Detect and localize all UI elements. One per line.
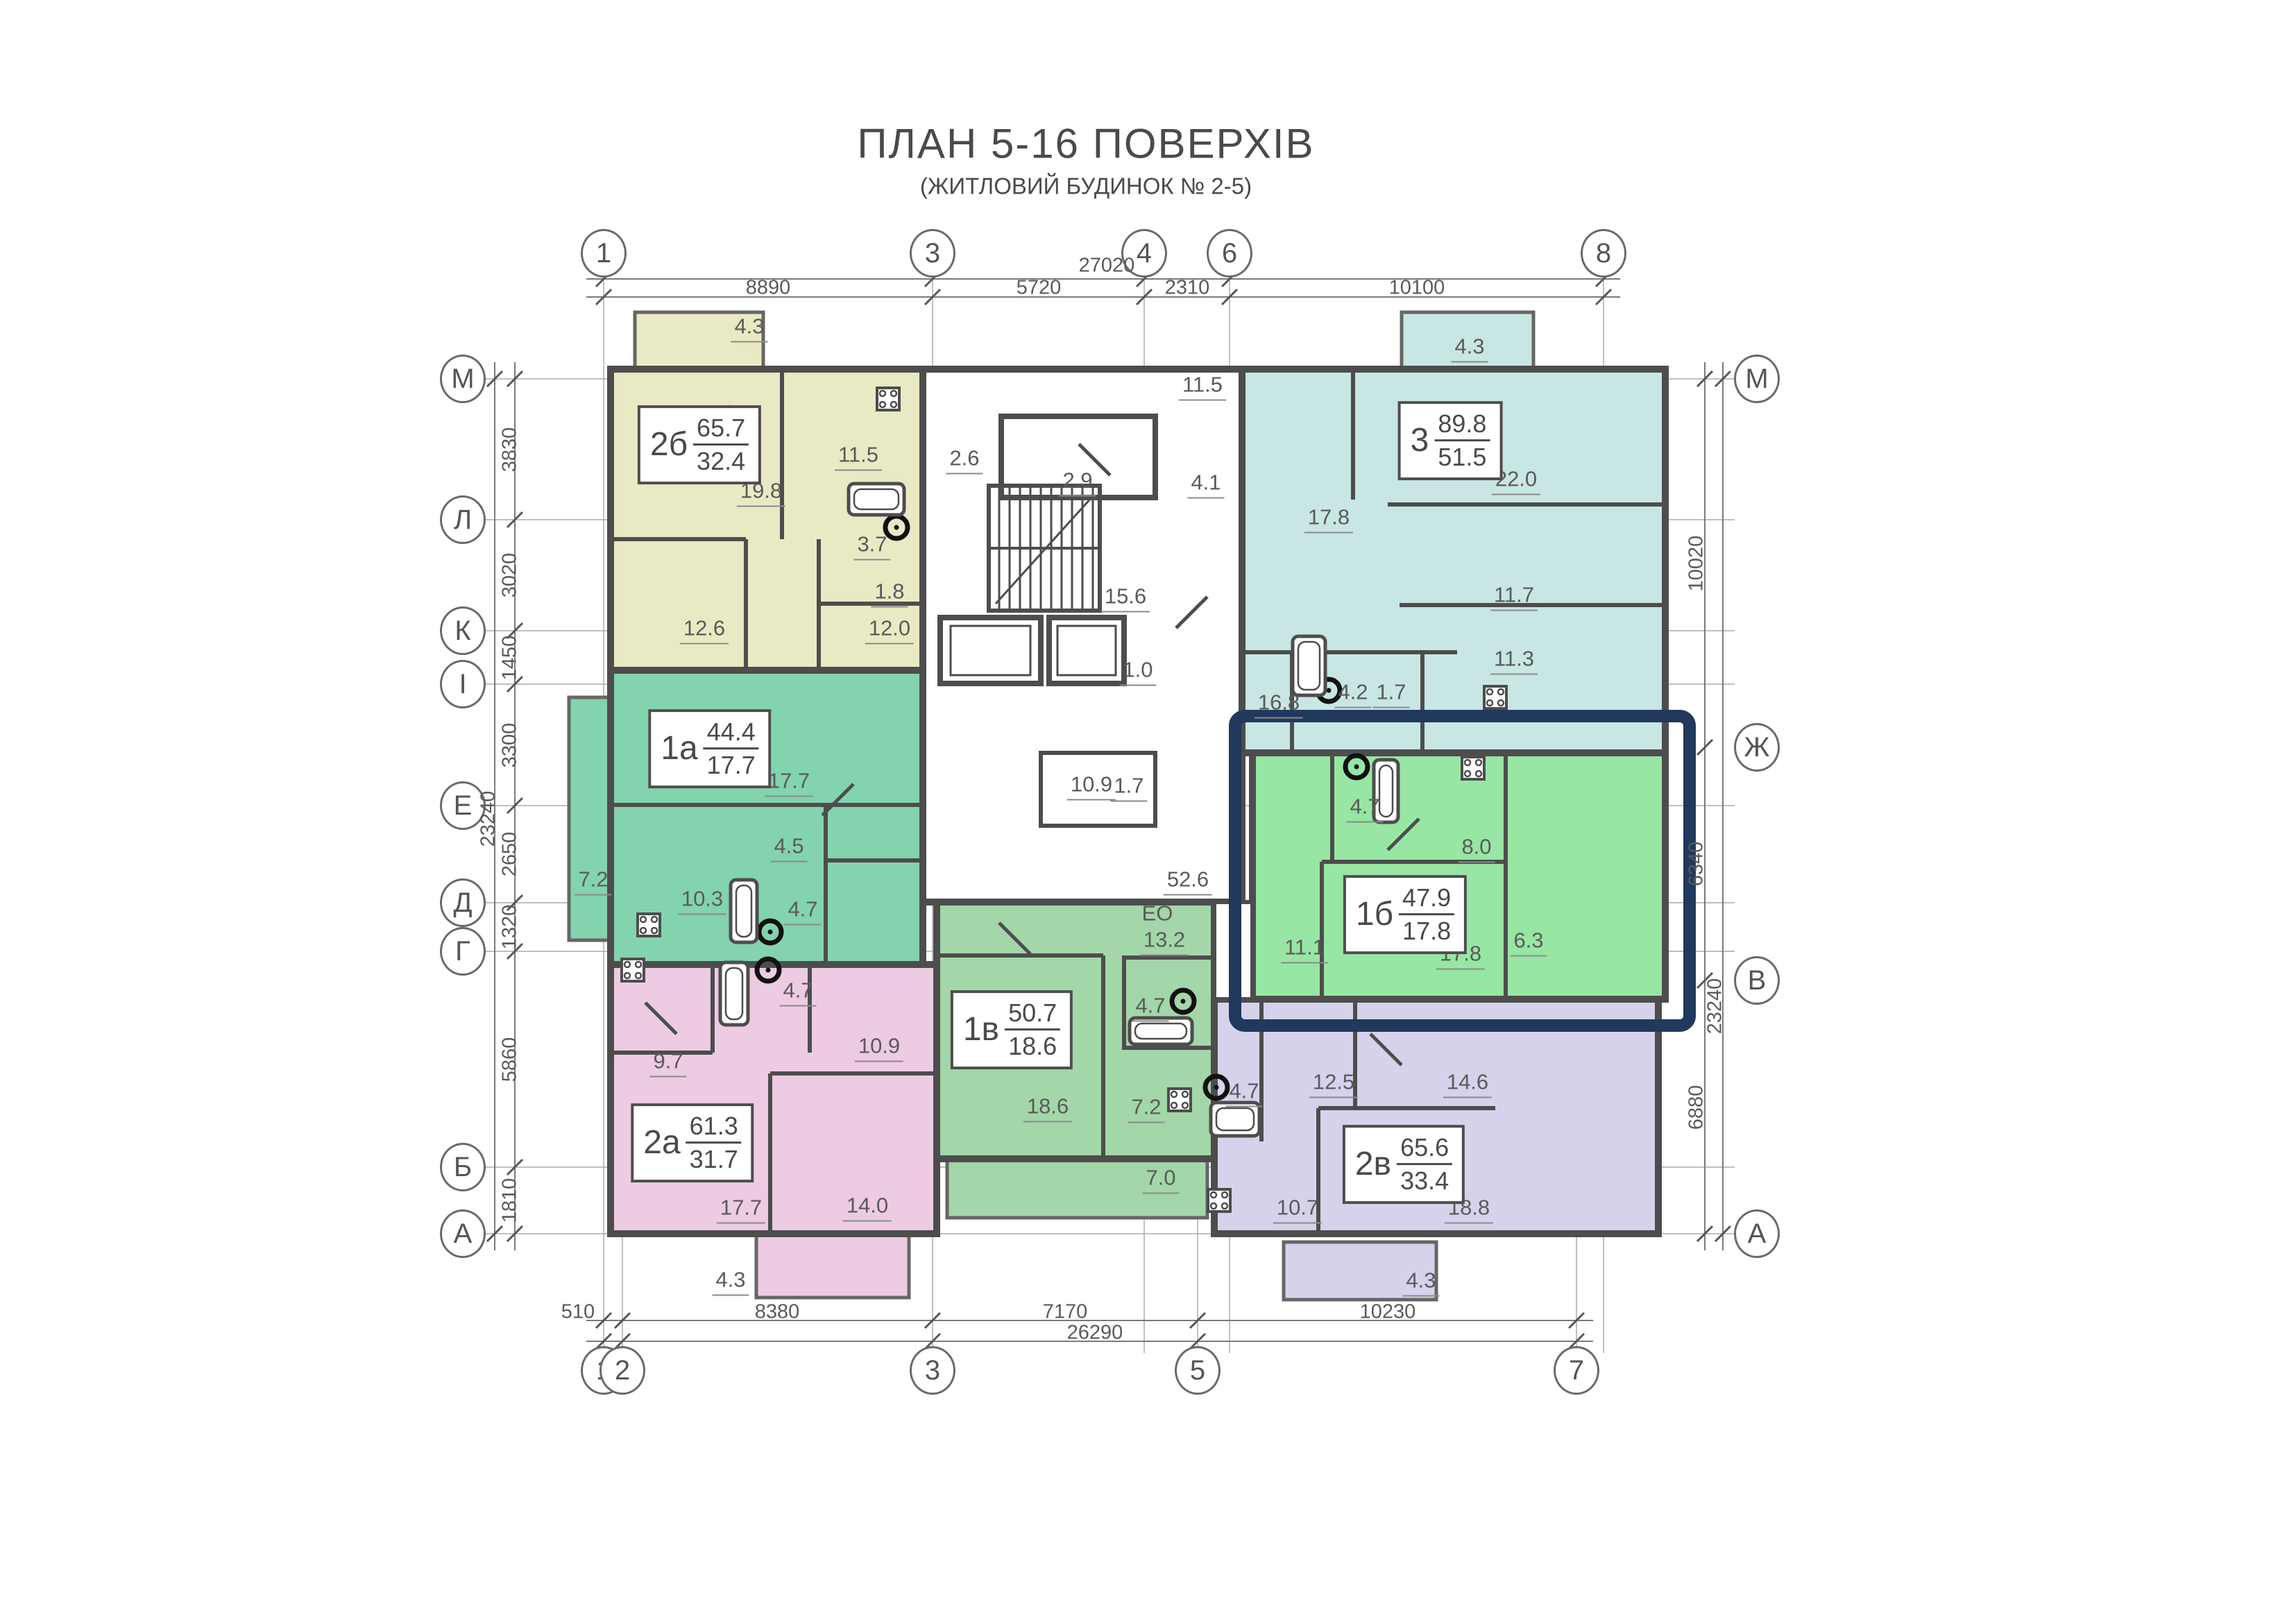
room-area-value: 14.6 [1443,1070,1492,1098]
room-label-apartment-2б: 4.3 [731,314,767,343]
axis-bubble-К: К [440,606,486,655]
axis-bubble-Д: Д [440,878,486,927]
dimension-label: 510 [561,1301,595,1324]
room-label-core: 11.5 [1179,373,1226,401]
room-label-apartment-2а: 4.7 [779,978,816,1007]
room-label-apartment-1в: 7.2 [1128,1095,1164,1123]
dimension-label: 5860 [499,1037,522,1082]
room-label-apartment-3: 11.7 [1490,583,1538,611]
dimension-label: 8890 [746,277,791,300]
apartment-area-fraction: 61.331.7 [686,1112,742,1174]
room-area-value: 1.7 [1372,680,1409,708]
room-label-core: ЕО [1139,901,1177,928]
apartment-code: 1в [963,1011,999,1049]
apartment-area-total: 47.9 [1399,883,1454,915]
room-label-core: 52.6 [1164,867,1212,896]
axis-bubble-М: М [440,355,486,403]
axis-bubble-В: В [1734,956,1780,1005]
room-label-core: 1.7 [1110,774,1147,802]
axis-bubble-А: А [1734,1209,1780,1258]
room-area-value: 1.0 [1119,658,1156,686]
apartment-area-total: 65.6 [1397,1133,1452,1165]
apartment-code: 2а [643,1124,680,1162]
room-label-apartment-3: 17.8 [1304,505,1353,534]
dimension-label: 6340 [1685,842,1708,887]
room-area-value: 12.5 [1309,1070,1358,1098]
room-label-apartment-2а: 4.3 [712,1268,749,1296]
apartment-area-fraction: 65.633.4 [1397,1133,1452,1196]
room-area-value: 4.2 [1334,680,1371,708]
room-label-apartment-2в: 10.7 [1273,1196,1322,1224]
room-area-value: 8.0 [1458,835,1495,863]
apartment-label-box-1а: 1а44.417.7 [648,709,771,788]
dimension-label: 7170 [1043,1301,1088,1324]
apartment-area-living: 51.5 [1434,442,1490,472]
room-label-apartment-2в: 4.7 [1225,1079,1262,1107]
room-area-value: 1.8 [871,579,908,608]
room-area-value: 12.6 [680,616,729,645]
dimension-label: 6880 [1685,1085,1708,1130]
apartment-area-total: 50.7 [1005,999,1060,1030]
room-area-value: 11.3 [1490,647,1538,675]
room-label-apartment-2в: 4.3 [1402,1268,1439,1297]
room-area-value: 4.1 [1187,470,1224,499]
axis-bubble-Г: Г [440,927,486,976]
room-area-value: 4.5 [770,834,807,863]
room-label-core: 4.1 [1187,470,1224,499]
axis-bubble-І: І [440,660,486,708]
axis-bubble-1: 1 [581,229,627,278]
room-label-apartment-2б: 3.7 [853,532,890,561]
room-label-apartment-1а: 7.2 [575,867,611,896]
room-area-value: 1.7 [1110,774,1147,802]
axis-bubble-5: 5 [1175,1346,1221,1395]
axis-bubble-А: А [440,1209,486,1258]
room-area-value: 4.3 [1402,1268,1439,1297]
apartment-area-living: 31.7 [686,1144,742,1174]
apartment-area-total: 65.7 [693,414,749,445]
dimension-total-label: 26290 [1067,1322,1123,1345]
room-area-value: 4.3 [1451,334,1488,363]
room-area-value: 3.7 [853,532,890,561]
room-area-value: 4.7 [784,897,821,926]
axis-bubble-М: М [1734,355,1780,403]
room-area-value: 12.0 [865,616,914,645]
room-label-apartment-2б: 1.8 [871,579,908,608]
room-area-value: 9.7 [649,1049,686,1078]
apartment-code: 1б [1356,896,1393,934]
dimension-total-label: 23240 [477,791,500,847]
axis-bubble-6: 6 [1207,229,1252,278]
room-area-value: 4.3 [731,314,767,343]
room-label-apartment-1а: 4.5 [770,834,807,863]
room-label-core: 2.9 [1059,468,1096,497]
room-label-apartment-3: 4.3 [1451,334,1488,363]
room-area-value: 16.8 [1255,690,1303,719]
axis-bubble-3: 3 [910,229,955,278]
room-label-apartment-2а: 9.7 [649,1049,686,1078]
floor-plan-page: ПЛАН 5-16 ПОВЕРХІВ (ЖИТЛОВИЙ БУДИНОК № 2… [0,0,2296,1623]
room-label-apartment-2в: 12.5 [1309,1070,1358,1098]
room-area-value: 10.9 [855,1034,903,1062]
room-area-value: 13.2 [1140,928,1189,956]
room-area-value: 10.7 [1273,1196,1322,1224]
room-label-apartment-1в: 18.6 [1023,1094,1072,1123]
room-label-apartment-1в: 7.0 [1142,1166,1179,1194]
room-label-core: 15.6 [1101,584,1150,613]
apartment-area-fraction: 89.851.5 [1434,409,1490,472]
apartment-label-box-1в: 1в50.718.6 [951,990,1073,1069]
room-area-value: 10.3 [678,887,726,915]
room-label-core: 2.6 [946,446,983,475]
apartment-code: 1а [661,730,697,768]
dimension-label: 10100 [1389,277,1445,300]
apartment-label-box-2в: 2в65.633.4 [1343,1125,1465,1204]
room-label-apartment-2б: 12.0 [865,616,914,645]
dimension-total-label: 23240 [1704,978,1727,1035]
apartment-area-fraction: 50.718.6 [1005,999,1060,1061]
room-area-value: 11.7 [1490,583,1538,611]
apartment-area-total: 44.4 [704,717,759,749]
room-area-value: 4.7 [1132,994,1168,1022]
room-label-core: 10.9 [1067,772,1116,801]
room-area-value: 17.7 [765,769,813,797]
room-label-apartment-1в: 4.7 [1132,994,1168,1022]
room-area-value: 4.3 [712,1268,749,1296]
room-area-value: 4.7 [779,978,816,1007]
room-area-value: 18.6 [1023,1094,1072,1123]
dimension-total-label: 27020 [1079,255,1135,278]
apartment-area-living: 17.8 [1399,916,1454,946]
room-label-apartment-1б: 4.7 [1346,794,1383,823]
dimension-label: 2650 [499,832,522,877]
apartment-area-fraction: 44.417.7 [704,717,759,780]
dimension-label: 2310 [1165,277,1210,300]
room-area-value: 11.1 [1281,935,1328,964]
apartment-label-box-2б: 2б65.732.4 [638,405,761,484]
room-label-apartment-1б: 11.1 [1281,935,1328,964]
apartment-code: 2б [650,426,688,464]
apartment-area-living: 32.4 [693,446,749,476]
room-label-apartment-3: 1.7 [1372,680,1409,708]
room-label-apartment-2в: 14.6 [1443,1070,1492,1098]
axis-bubble-3: 3 [910,1346,955,1395]
room-area-value: 14.0 [843,1193,892,1222]
room-area-value: 11.5 [835,443,882,471]
room-area-value: 4.7 [1346,794,1383,823]
dimension-label: 3020 [499,553,522,598]
dimension-label: 1810 [499,1178,522,1223]
room-area-value: 17.8 [1304,505,1353,534]
room-area-value: ЕО [1139,901,1177,928]
room-label-apartment-2а: 14.0 [843,1193,892,1222]
apartment-area-fraction: 65.732.4 [693,414,749,476]
room-label-apartment-2а: 17.7 [717,1196,765,1224]
room-area-value: 7.2 [1128,1095,1164,1123]
apartment-area-total: 61.3 [686,1112,742,1144]
room-label-apartment-1а: 17.7 [765,769,813,797]
dimension-label: 5720 [1017,277,1062,300]
axis-bubble-8: 8 [1581,229,1626,278]
apartment-area-living: 18.6 [1005,1031,1060,1061]
room-area-value: 10.9 [1067,772,1116,801]
apartment-code: 2в [1355,1146,1391,1184]
room-label-apartment-1а: 4.7 [784,897,821,926]
dimension-label: 3300 [499,723,522,768]
axis-bubble-7: 7 [1554,1346,1599,1395]
room-area-value: 2.9 [1059,468,1096,497]
room-label-apartment-1б: 6.3 [1510,928,1547,957]
room-area-value: 4.7 [1225,1079,1262,1107]
dimension-label: 10230 [1360,1301,1416,1324]
room-area-value: 7.0 [1142,1166,1179,1194]
apartment-label-box-1б: 1б47.917.8 [1343,875,1467,954]
room-label-apartment-2а: 10.9 [855,1034,903,1062]
apartment-area-fraction: 47.917.8 [1399,883,1454,946]
room-area-value: 11.5 [1179,373,1226,401]
labels-overlay: 1346812357МЛКІЕДГБАМЖВА88905720231010100… [0,0,2296,1623]
room-label-apartment-2б: 12.6 [680,616,729,645]
room-label-apartment-1в: 13.2 [1140,928,1189,956]
room-area-value: 2.6 [946,446,983,475]
room-area-value: 7.2 [575,867,611,896]
room-area-value: 15.6 [1101,584,1150,613]
room-label-apartment-3: 4.2 [1334,680,1371,708]
dimension-label: 8380 [755,1301,800,1324]
room-label-apartment-2б: 11.5 [835,443,882,471]
room-label-apartment-3: 11.3 [1490,647,1538,675]
room-label-apartment-3: 16.8 [1255,690,1303,719]
dimension-label: 3830 [499,427,522,473]
axis-bubble-Б: Б [440,1143,486,1191]
axis-bubble-2: 2 [599,1346,645,1395]
apartment-label-box-3: 389.851.5 [1398,401,1503,480]
dimension-label: 1450 [499,636,522,681]
room-label-apartment-1а: 10.3 [678,887,726,915]
room-area-value: 17.7 [717,1196,765,1224]
axis-bubble-Л: Л [440,495,486,544]
apartment-code: 3 [1411,422,1429,460]
dimension-label: 1320 [499,905,522,950]
axis-bubble-Ж: Ж [1734,723,1780,772]
dimension-label: 10020 [1685,536,1708,592]
room-label-apartment-1б: 8.0 [1458,835,1495,863]
apartment-label-box-2а: 2а61.331.7 [631,1103,754,1182]
apartment-area-living: 33.4 [1397,1166,1452,1196]
room-area-value: 52.6 [1164,867,1212,896]
apartment-area-total: 89.8 [1434,409,1490,441]
room-label-core: 1.0 [1119,658,1156,686]
apartment-area-living: 17.7 [704,750,759,780]
room-area-value: 6.3 [1510,928,1547,957]
